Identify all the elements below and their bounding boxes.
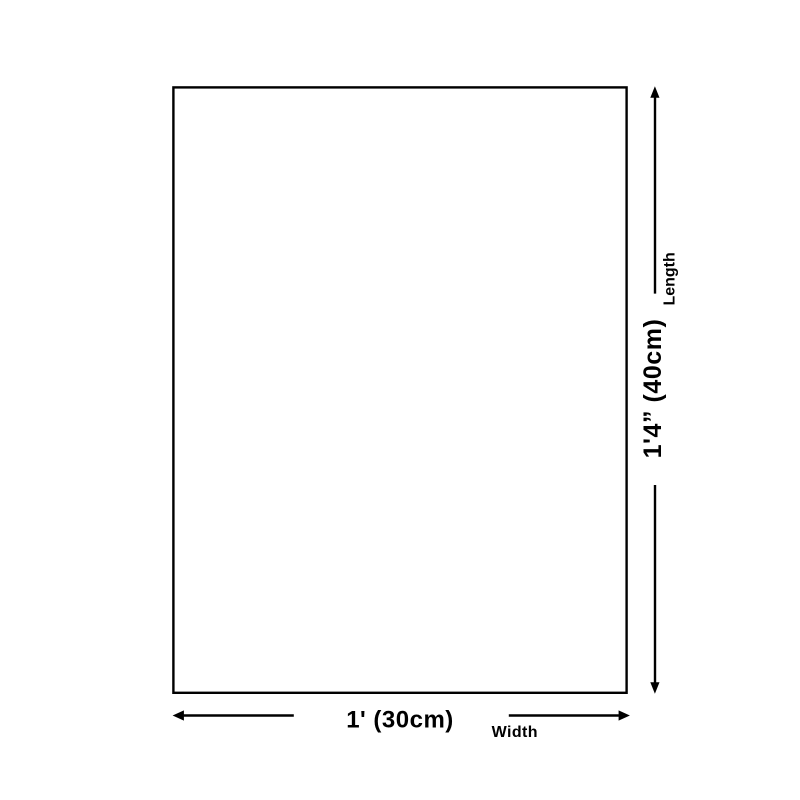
svg-text:1' (30cm): 1' (30cm) <box>346 707 454 734</box>
svg-text:Width: Width <box>492 724 538 741</box>
svg-text:Length: Length <box>662 252 679 305</box>
svg-text:1'4” (40cm): 1'4” (40cm) <box>639 319 667 459</box>
